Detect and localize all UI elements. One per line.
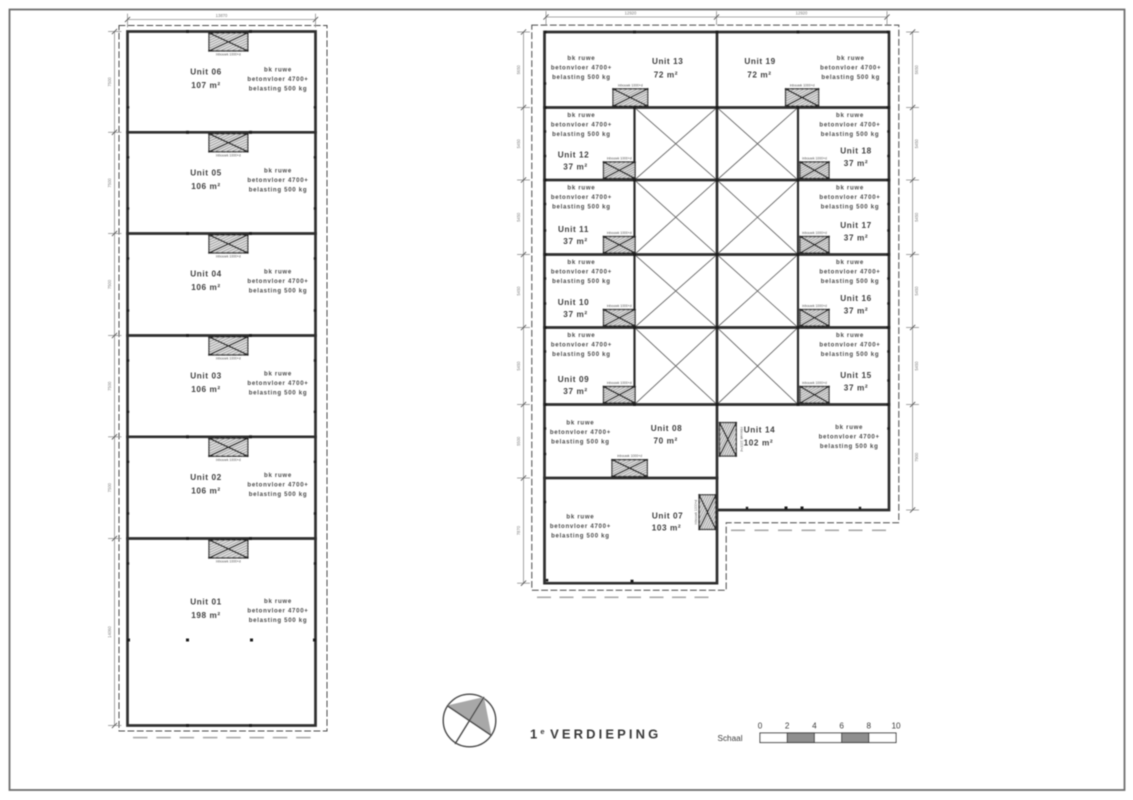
svg-text:5450: 5450 bbox=[914, 361, 919, 371]
svg-text:72 m²: 72 m² bbox=[747, 71, 771, 80]
svg-text:inbouwk 1000+d: inbouwk 1000+d bbox=[607, 304, 632, 308]
svg-text:belasting 500 kg: belasting 500 kg bbox=[552, 204, 611, 211]
svg-text:inbouwk 1000+d: inbouwk 1000+d bbox=[607, 157, 632, 161]
svg-text:belasting 500 kg: belasting 500 kg bbox=[249, 86, 308, 93]
svg-text:betonvloer 4700+: betonvloer 4700+ bbox=[247, 608, 308, 615]
svg-text:7870: 7870 bbox=[516, 525, 521, 535]
svg-text:belasting 500 kg: belasting 500 kg bbox=[552, 351, 611, 358]
svg-text:2: 2 bbox=[785, 722, 790, 731]
svg-text:bk ruwe: bk ruwe bbox=[264, 269, 292, 276]
svg-text:belasting 500 kg: belasting 500 kg bbox=[820, 443, 879, 450]
svg-text:Unit 07: Unit 07 bbox=[652, 512, 684, 521]
svg-text:inbouwk 1000+d: inbouwk 1000+d bbox=[802, 304, 827, 308]
svg-text:5500: 5500 bbox=[516, 436, 521, 446]
svg-text:belasting 500 kg: belasting 500 kg bbox=[551, 533, 610, 540]
svg-text:belasting 500 kg: belasting 500 kg bbox=[821, 278, 880, 285]
svg-text:bk ruwe: bk ruwe bbox=[836, 185, 864, 192]
svg-text:37 m²: 37 m² bbox=[844, 159, 868, 168]
svg-text:belasting 500 kg: belasting 500 kg bbox=[249, 186, 308, 193]
svg-text:7500: 7500 bbox=[107, 381, 112, 391]
svg-text:8: 8 bbox=[867, 722, 872, 731]
svg-text:belasting 500 kg: belasting 500 kg bbox=[552, 74, 611, 81]
svg-text:Unit 11: Unit 11 bbox=[558, 225, 589, 234]
svg-text:inbouwk 1000+d: inbouwk 1000+d bbox=[216, 560, 241, 564]
svg-text:bk ruwe: bk ruwe bbox=[566, 420, 594, 427]
svg-text:0: 0 bbox=[758, 722, 763, 731]
svg-text:betonvloer 4700+: betonvloer 4700+ bbox=[550, 523, 611, 530]
svg-text:Unit 03: Unit 03 bbox=[190, 372, 222, 381]
svg-text:belasting 500 kg: belasting 500 kg bbox=[249, 390, 308, 397]
svg-text:7500: 7500 bbox=[107, 178, 112, 188]
svg-text:12920: 12920 bbox=[796, 11, 808, 16]
svg-text:betonvloer 4700+: betonvloer 4700+ bbox=[247, 76, 308, 83]
svg-text:1eVERDIEPING: 1eVERDIEPING bbox=[530, 727, 661, 742]
svg-text:bk ruwe: bk ruwe bbox=[264, 167, 292, 174]
svg-text:betonvloer 4700+: betonvloer 4700+ bbox=[247, 380, 308, 387]
svg-text:Unit 09: Unit 09 bbox=[558, 375, 590, 384]
svg-text:bk ruwe: bk ruwe bbox=[264, 371, 292, 378]
svg-text:bk ruwe: bk ruwe bbox=[567, 112, 595, 119]
svg-text:belasting 500 kg: belasting 500 kg bbox=[552, 278, 611, 285]
svg-text:106 m²: 106 m² bbox=[191, 283, 221, 292]
svg-text:7500: 7500 bbox=[107, 77, 112, 87]
svg-text:Unit 06: Unit 06 bbox=[190, 68, 222, 77]
svg-text:bk ruwe: bk ruwe bbox=[836, 259, 864, 266]
svg-text:5450: 5450 bbox=[914, 286, 919, 296]
svg-text:106 m²: 106 m² bbox=[191, 486, 221, 495]
svg-text:betonvloer 4700+: betonvloer 4700+ bbox=[247, 278, 308, 285]
svg-text:Schaal: Schaal bbox=[718, 734, 743, 743]
svg-text:5450: 5450 bbox=[516, 361, 521, 371]
svg-text:inbouwk 1000+d: inbouwk 1000+d bbox=[618, 83, 643, 87]
svg-text:inbouwk 1000+d: inbouwk 1000+d bbox=[802, 157, 827, 161]
svg-text:102 m²: 102 m² bbox=[744, 439, 774, 448]
svg-text:inbouwk 1000+d: inbouwk 1000+d bbox=[740, 427, 744, 452]
svg-text:belasting 500 kg: belasting 500 kg bbox=[821, 204, 880, 211]
svg-text:betonvloer 4700+: betonvloer 4700+ bbox=[551, 65, 612, 72]
svg-text:5450: 5450 bbox=[914, 138, 919, 148]
svg-text:107 m²: 107 m² bbox=[191, 81, 221, 90]
svg-text:betonvloer 4700+: betonvloer 4700+ bbox=[551, 342, 612, 349]
svg-text:5650: 5650 bbox=[914, 64, 919, 74]
svg-text:37 m²: 37 m² bbox=[563, 387, 587, 396]
svg-text:7900: 7900 bbox=[914, 452, 919, 462]
svg-text:belasting 500 kg: belasting 500 kg bbox=[551, 439, 610, 446]
svg-text:bk ruwe: bk ruwe bbox=[836, 332, 864, 339]
svg-text:inbouwk 1000+d: inbouwk 1000+d bbox=[802, 381, 827, 385]
svg-text:bk ruwe: bk ruwe bbox=[264, 598, 292, 605]
svg-text:inbouwk 1000+d: inbouwk 1000+d bbox=[607, 381, 632, 385]
svg-text:betonvloer 4700+: betonvloer 4700+ bbox=[247, 481, 308, 488]
svg-text:belasting 500 kg: belasting 500 kg bbox=[821, 74, 880, 81]
svg-text:Unit 16: Unit 16 bbox=[840, 294, 872, 303]
svg-text:bk ruwe: bk ruwe bbox=[264, 472, 292, 479]
svg-text:Unit 15: Unit 15 bbox=[840, 371, 872, 380]
svg-text:10: 10 bbox=[891, 722, 901, 731]
svg-text:inbouwk 1000+d: inbouwk 1000+d bbox=[216, 154, 241, 158]
svg-text:bk ruwe: bk ruwe bbox=[567, 55, 595, 62]
svg-text:belasting 500 kg: belasting 500 kg bbox=[552, 131, 611, 138]
svg-text:inbouwk 1000+d: inbouwk 1000+d bbox=[216, 53, 241, 57]
svg-text:Unit 10: Unit 10 bbox=[558, 298, 590, 307]
svg-text:Unit 18: Unit 18 bbox=[840, 147, 872, 156]
svg-text:4: 4 bbox=[812, 722, 817, 731]
svg-text:betonvloer 4700+: betonvloer 4700+ bbox=[820, 65, 881, 72]
svg-text:betonvloer 4700+: betonvloer 4700+ bbox=[551, 269, 612, 276]
svg-text:belasting 500 kg: belasting 500 kg bbox=[821, 131, 880, 138]
svg-text:Unit 19: Unit 19 bbox=[744, 57, 776, 66]
svg-text:7500: 7500 bbox=[107, 482, 112, 492]
svg-text:70 m²: 70 m² bbox=[654, 437, 678, 446]
svg-text:betonvloer 4700+: betonvloer 4700+ bbox=[819, 194, 880, 201]
svg-text:Unit 02: Unit 02 bbox=[190, 473, 222, 482]
svg-text:bk ruwe: bk ruwe bbox=[835, 424, 863, 431]
svg-text:belasting 500 kg: belasting 500 kg bbox=[821, 351, 880, 358]
svg-text:belasting 500 kg: belasting 500 kg bbox=[249, 288, 308, 295]
svg-text:37 m²: 37 m² bbox=[844, 234, 868, 243]
svg-text:Unit 04: Unit 04 bbox=[190, 270, 222, 279]
svg-text:betonvloer 4700+: betonvloer 4700+ bbox=[819, 342, 880, 349]
svg-text:inbouwk 1000+d: inbouwk 1000+d bbox=[216, 357, 241, 361]
svg-text:bk ruwe: bk ruwe bbox=[567, 332, 595, 339]
svg-text:Unit 17: Unit 17 bbox=[840, 221, 872, 230]
svg-text:inbouwk 1000+d: inbouwk 1000+d bbox=[617, 454, 642, 458]
svg-text:inbouwk 1000+d: inbouwk 1000+d bbox=[216, 255, 241, 259]
svg-text:5450: 5450 bbox=[516, 286, 521, 296]
svg-text:198 m²: 198 m² bbox=[191, 611, 221, 620]
svg-text:13870: 13870 bbox=[216, 13, 228, 18]
svg-text:Unit 01: Unit 01 bbox=[190, 598, 222, 607]
svg-text:7500: 7500 bbox=[107, 279, 112, 289]
svg-text:106 m²: 106 m² bbox=[191, 385, 221, 394]
svg-text:72 m²: 72 m² bbox=[654, 71, 678, 80]
svg-text:37 m²: 37 m² bbox=[844, 384, 868, 393]
svg-text:betonvloer 4700+: betonvloer 4700+ bbox=[247, 177, 308, 184]
svg-text:37 m²: 37 m² bbox=[563, 163, 587, 172]
svg-text:inbouwk 1000+d: inbouwk 1000+d bbox=[802, 231, 827, 235]
svg-text:inbouwk 1000+d: inbouwk 1000+d bbox=[607, 231, 632, 235]
svg-text:inbouwk 1000+d: inbouwk 1000+d bbox=[694, 500, 698, 525]
svg-text:Unit 14: Unit 14 bbox=[744, 426, 776, 435]
svg-text:betonvloer 4700+: betonvloer 4700+ bbox=[550, 429, 611, 436]
svg-text:5450: 5450 bbox=[516, 138, 521, 148]
svg-text:37 m²: 37 m² bbox=[844, 307, 868, 316]
svg-text:Unit 05: Unit 05 bbox=[190, 168, 222, 177]
svg-text:Unit 13: Unit 13 bbox=[652, 57, 684, 66]
svg-text:Unit 08: Unit 08 bbox=[651, 424, 683, 433]
svg-text:belasting 500 kg: belasting 500 kg bbox=[249, 491, 308, 498]
svg-text:6: 6 bbox=[839, 722, 844, 731]
svg-text:5450: 5450 bbox=[516, 212, 521, 222]
svg-text:bk ruwe: bk ruwe bbox=[837, 55, 865, 62]
svg-text:5450: 5450 bbox=[914, 212, 919, 222]
svg-text:bk ruwe: bk ruwe bbox=[836, 112, 864, 119]
svg-text:14060: 14060 bbox=[107, 626, 112, 638]
svg-text:betonvloer 4700+: betonvloer 4700+ bbox=[819, 434, 880, 441]
svg-text:5650: 5650 bbox=[516, 64, 521, 74]
svg-text:inbouwk 1000+d: inbouwk 1000+d bbox=[790, 83, 815, 87]
svg-text:betonvloer 4700+: betonvloer 4700+ bbox=[551, 122, 612, 129]
svg-text:bk ruwe: bk ruwe bbox=[566, 514, 594, 521]
svg-text:belasting 500 kg: belasting 500 kg bbox=[249, 617, 308, 624]
svg-text:12920: 12920 bbox=[625, 11, 637, 16]
svg-text:Unit 12: Unit 12 bbox=[558, 151, 590, 160]
svg-text:bk ruwe: bk ruwe bbox=[567, 259, 595, 266]
svg-text:bk ruwe: bk ruwe bbox=[264, 67, 292, 74]
svg-text:betonvloer 4700+: betonvloer 4700+ bbox=[551, 194, 612, 201]
svg-text:inbouwk 1000+d: inbouwk 1000+d bbox=[216, 458, 241, 462]
svg-text:106 m²: 106 m² bbox=[191, 182, 221, 191]
svg-text:37 m²: 37 m² bbox=[563, 310, 587, 319]
svg-text:betonvloer 4700+: betonvloer 4700+ bbox=[819, 122, 880, 129]
svg-text:bk ruwe: bk ruwe bbox=[567, 185, 595, 192]
svg-text:betonvloer 4700+: betonvloer 4700+ bbox=[819, 269, 880, 276]
svg-text:37 m²: 37 m² bbox=[563, 237, 587, 246]
svg-text:103 m²: 103 m² bbox=[652, 524, 682, 533]
